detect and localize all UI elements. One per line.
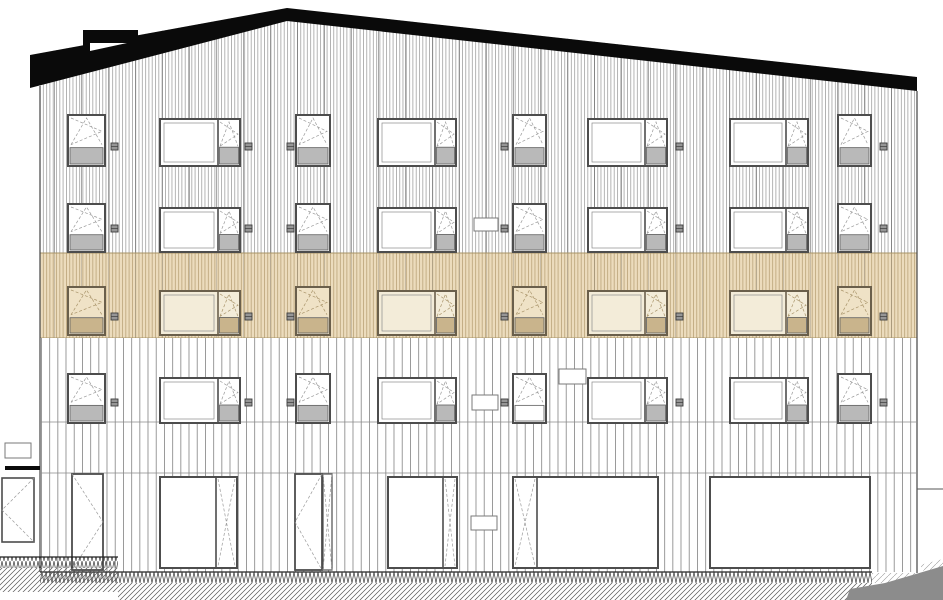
window-sill [515,148,544,164]
storefront-frame [710,477,870,568]
window-square [296,287,330,335]
vent [287,225,294,232]
window-sill [437,405,455,421]
window-sill [70,405,103,421]
window-wide [730,208,808,252]
window-square [513,115,546,166]
storefront-window [160,477,237,568]
window-wide [378,119,456,166]
vent [287,399,294,406]
entrance-door [72,474,103,570]
window-square [838,115,871,166]
window-wide [160,208,240,252]
window-sill [70,148,103,164]
window-square [296,115,330,166]
window-square [513,374,546,423]
storefront-window [513,477,658,568]
window-sill [220,234,239,250]
side-door [2,478,34,542]
window-sill [515,405,544,421]
vent [111,399,118,406]
window-square [838,287,871,335]
window-wide [378,378,456,423]
window-square [296,204,330,252]
elevation-drawing [0,0,943,600]
window-sill [840,318,869,333]
window-sill [298,148,328,164]
window-wide [588,119,667,166]
storefront-frame [160,477,237,568]
vent [501,143,508,150]
window-sill [788,405,807,421]
ground-hatch-left [0,568,118,592]
window-sill [788,234,807,250]
window-sill [840,405,869,421]
vent [245,399,252,406]
elevation-sheet [0,0,943,600]
window-sill [298,405,328,421]
door-leaf [72,474,103,570]
vent [676,399,683,406]
window-square [68,287,105,335]
window-sill [298,235,328,250]
vent [501,399,508,406]
vent [501,313,508,320]
window-square [68,115,105,166]
window-wide [730,119,808,166]
window-sill [437,147,455,164]
ground-zigzag-left [0,557,118,568]
storefront-window [388,477,457,568]
window-sill [298,318,328,333]
vent [501,225,508,232]
window-sill [220,317,239,333]
window-wide [730,378,808,423]
vent [676,225,683,232]
window-wide [160,291,240,335]
window-wide [160,119,240,166]
window-sill [647,147,666,164]
storefront-frame [513,477,658,568]
window-sill [70,318,103,333]
window-sill [515,318,544,333]
window-sill [220,147,239,164]
window-wide [588,291,667,335]
window-sill [647,405,666,421]
window-wide [588,208,667,252]
window-square [68,374,105,423]
window-wide [588,378,667,423]
vent [287,143,294,150]
window-sill [437,317,455,333]
placard-floor-1-upper [559,369,586,384]
window-sill [840,235,869,250]
window-sill [788,317,807,333]
window-wide [730,291,808,335]
window-square [68,204,105,252]
placard-outside-left [5,443,31,458]
vent [245,313,252,320]
ground-zigzag [40,572,872,583]
vent [111,143,118,150]
vent [245,143,252,150]
window-sill [70,235,103,250]
window-sill [647,317,666,333]
window-sill [788,147,807,164]
ground-hatch [118,583,872,600]
side-canopy [5,466,40,470]
window-sill [220,405,239,421]
vent [676,313,683,320]
vent [880,225,887,232]
window-sill [515,235,544,250]
vent [287,313,294,320]
chimney-stem [83,30,90,57]
side-entrance [2,466,40,542]
vent [245,225,252,232]
window-wide [378,208,456,252]
entrance-door [295,474,332,570]
window-sill [437,234,455,250]
vent [880,399,887,406]
window-square [513,204,546,252]
placard-floor-3 [474,218,498,231]
placard-ground [471,516,497,530]
window-square [513,287,546,335]
window-square [838,374,871,423]
vent [676,143,683,150]
chimney-cap [83,30,138,43]
vent [880,313,887,320]
door-leaf [295,474,322,570]
vent [880,143,887,150]
storefront-window [710,477,870,568]
placard-floor-1 [472,395,498,410]
vent [111,313,118,320]
vent [111,225,118,232]
window-wide [378,291,456,335]
window-sill [840,148,869,164]
window-square [296,374,330,423]
window-sill [647,234,666,250]
window-square [838,204,871,252]
window-wide [160,378,240,423]
